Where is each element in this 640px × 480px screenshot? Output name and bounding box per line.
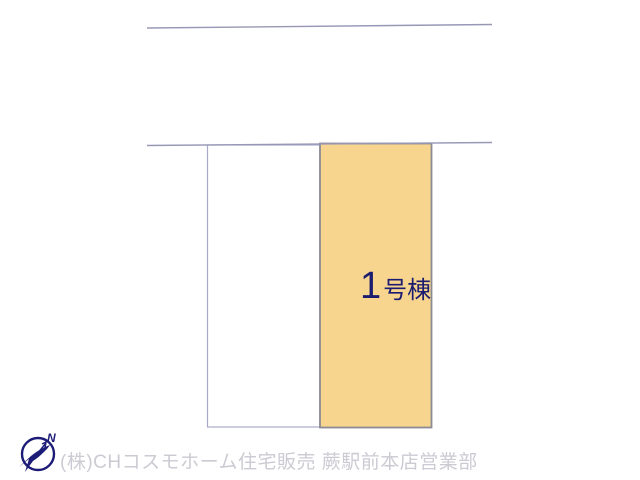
- footer-company-text: (株)CHコスモホーム住宅販売 蕨駅前本店営業部: [60, 447, 478, 474]
- site-plan-canvas: 1 号棟 N (株)CHコスモホーム住宅販売 蕨駅前本店営業部: [0, 0, 640, 480]
- site-plan-drawing: [0, 0, 640, 480]
- compass-icon: N: [17, 430, 63, 478]
- empty-plot: [208, 145, 321, 427]
- building-plot-1: [320, 144, 432, 428]
- road-line-upper: [147, 25, 492, 29]
- north-label: N: [47, 431, 56, 445]
